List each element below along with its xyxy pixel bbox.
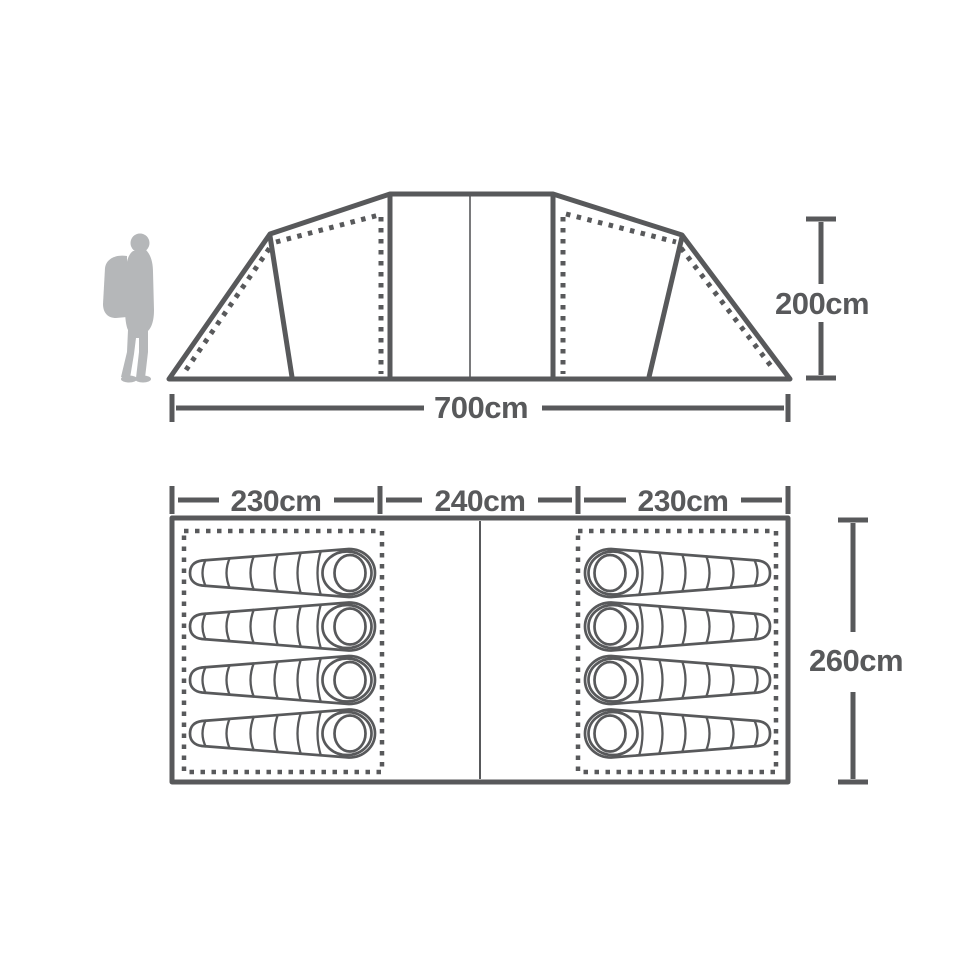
- sleeping-bag-hood-inner: [335, 609, 366, 645]
- sleeping-bag-rib: [682, 714, 686, 752]
- sleeping-bag-rib: [730, 611, 734, 642]
- centre-section-label: 240cm: [435, 485, 526, 518]
- sleeping-bag-rib: [659, 606, 663, 648]
- sleeping-bag-rib: [730, 718, 734, 749]
- tent-pole-lines: [270, 196, 682, 377]
- sleeping-bag-rib: [227, 611, 231, 642]
- sleeping-bag-rib: [275, 661, 279, 699]
- sleeping-bag-rib: [706, 556, 710, 591]
- sleeping-bag: [190, 710, 375, 758]
- height-dimension-label: 200cm: [775, 286, 869, 321]
- sleeping-bag-rib: [706, 716, 710, 751]
- sleeping-bag: [585, 549, 770, 597]
- sleeping-bag: [190, 549, 375, 597]
- left-section-label: 230cm: [231, 485, 322, 518]
- sleeping-bag-rib: [275, 607, 279, 645]
- sleeping-bag-hood-inner: [335, 716, 366, 752]
- sleeping-bag-rib: [659, 552, 663, 594]
- sleeping-bag-rib: [730, 664, 734, 695]
- tent-floor-plan: 230cm 240cm 230cm 260cm: [172, 485, 903, 782]
- left-bedroom-sleeping-bags: [190, 549, 375, 758]
- sleeping-bag-rib: [754, 613, 758, 640]
- sleeping-bag-hood-inner: [595, 716, 626, 752]
- sleeping-bag-rib: [318, 711, 322, 756]
- sleeping-bag-rib: [275, 554, 279, 592]
- sleeping-bag-rib: [754, 666, 758, 693]
- sleeping-bag-rib: [251, 609, 255, 644]
- sleeping-bag-rib: [251, 663, 255, 698]
- sleeping-bag-rib: [754, 720, 758, 747]
- hiker-silhouette-icon: [103, 234, 154, 383]
- sleeping-bag-rib: [639, 711, 643, 756]
- sleeping-bag-rib: [227, 664, 231, 695]
- right-bedroom-sleeping-bags: [585, 549, 770, 758]
- sleeping-bag-rib: [227, 557, 231, 588]
- width-dimension-label: 700cm: [434, 390, 528, 425]
- sleeping-bag-rib: [706, 663, 710, 698]
- sleeping-bag-rib: [203, 666, 207, 693]
- sleeping-bag-rib: [318, 658, 322, 703]
- tent-outline: [169, 194, 790, 379]
- sleeping-bag-rib: [251, 556, 255, 591]
- sleeping-bag-rib: [639, 658, 643, 703]
- sleeping-bag-rib: [318, 604, 322, 649]
- sleeping-bag-hood-inner: [595, 555, 626, 591]
- sleeping-bag-rib: [682, 607, 686, 645]
- tent-dimension-diagram: 700cm 200cm: [0, 0, 960, 960]
- sleeping-bag-rib: [659, 713, 663, 755]
- sleeping-bag-rib: [639, 551, 643, 596]
- tent-side-elevation: 700cm 200cm: [103, 194, 869, 425]
- sleeping-bag: [585, 603, 770, 651]
- sleeping-bag-rib: [275, 714, 279, 752]
- sleeping-bag-rib: [251, 716, 255, 751]
- sleeping-bag-rib: [203, 720, 207, 747]
- sleeping-bag-hood-inner: [595, 609, 626, 645]
- sleeping-bag-rib: [682, 661, 686, 699]
- sleeping-bag-rib: [203, 559, 207, 586]
- sleeping-bag-rib: [298, 606, 302, 648]
- sleeping-bag-rib: [659, 659, 663, 701]
- sleeping-bag-rib: [298, 713, 302, 755]
- sleeping-bag-hood-inner: [335, 662, 366, 698]
- sleeping-bag: [190, 656, 375, 704]
- sleeping-bag-rib: [298, 552, 302, 594]
- sleeping-bag: [190, 603, 375, 651]
- sleeping-bag-rib: [754, 559, 758, 586]
- sleeping-bag: [585, 656, 770, 704]
- right-section-label: 230cm: [638, 485, 729, 518]
- sleeping-bag-rib: [298, 659, 302, 701]
- sleeping-bag-rib: [639, 604, 643, 649]
- sleeping-bag-rib: [227, 718, 231, 749]
- sleeping-bag-rib: [706, 609, 710, 644]
- sleeping-bag-rib: [203, 613, 207, 640]
- sleeping-bag: [585, 710, 770, 758]
- sleeping-bag-hood-inner: [595, 662, 626, 698]
- sleeping-bag-rib: [682, 554, 686, 592]
- sleeping-bag-hood-inner: [335, 555, 366, 591]
- sleeping-bag-rib: [730, 557, 734, 588]
- diagram-canvas: 700cm 200cm: [0, 0, 960, 960]
- depth-dimension-label: 260cm: [809, 643, 903, 678]
- sleeping-bag-rib: [318, 551, 322, 596]
